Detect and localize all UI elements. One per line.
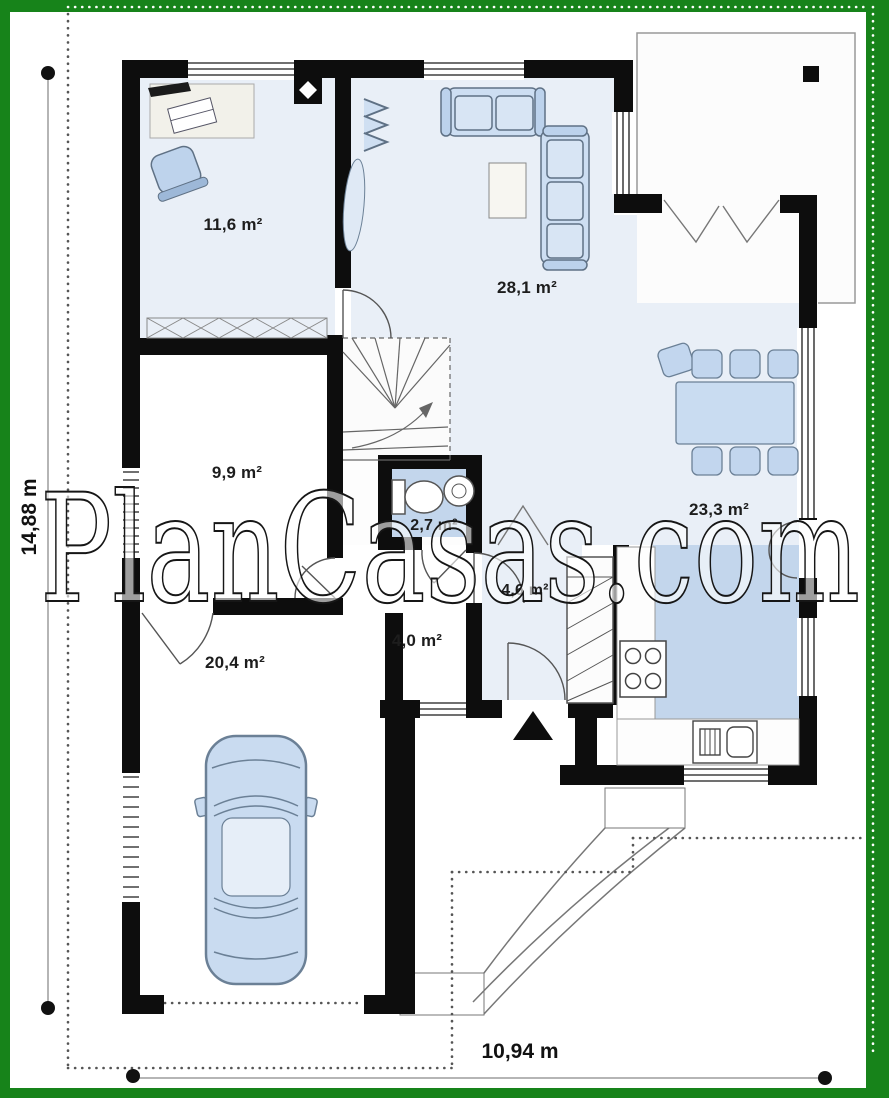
- room-area-label-study: 11,6 m²: [203, 215, 262, 235]
- room-area-label-kitchen: 23,3 m²: [689, 500, 749, 520]
- dining-chair: [768, 350, 798, 378]
- coffee-table: [489, 163, 526, 218]
- entrance-arrow: [513, 711, 553, 740]
- tall-cabinet: [567, 557, 613, 703]
- room-area-label-bathroom: 2,7 m²: [410, 517, 457, 535]
- dining-table: [676, 382, 794, 444]
- room-area-label-hall: 4,0 m²: [392, 631, 442, 651]
- dining-chair: [768, 447, 798, 475]
- dining-chair: [692, 350, 722, 378]
- kitchen-sink: [693, 721, 757, 763]
- dimension-label-height: 14,88 m: [18, 478, 42, 555]
- stove: [620, 641, 666, 697]
- sofa-vertical: [541, 126, 589, 270]
- radiator: [364, 99, 387, 151]
- car: [194, 736, 317, 984]
- toilet: [405, 481, 443, 513]
- room-area-label-bedroom: 9,9 m²: [212, 463, 262, 483]
- floor-plan-drawing: [0, 0, 889, 1098]
- dining-chair: [730, 350, 760, 378]
- room-area-label-vestibule: 4,6 m²: [501, 582, 548, 600]
- dining-chair: [730, 447, 760, 475]
- washbasin: [444, 476, 474, 506]
- floor-plan-page: 11,6 m² 28,1 m² 9,9 m² 2,7 m² 23,3 m² 4,…: [0, 0, 889, 1098]
- dimension-label-width: 10,94 m: [481, 1040, 558, 1064]
- room-area-label-garage: 20,4 m²: [205, 653, 265, 673]
- entrance-steps: [400, 788, 685, 1015]
- sofa-horizontal: [441, 88, 545, 136]
- room-area-label-living: 28,1 m²: [497, 278, 557, 298]
- dining-chair: [692, 447, 722, 475]
- toilet-tank: [392, 480, 405, 514]
